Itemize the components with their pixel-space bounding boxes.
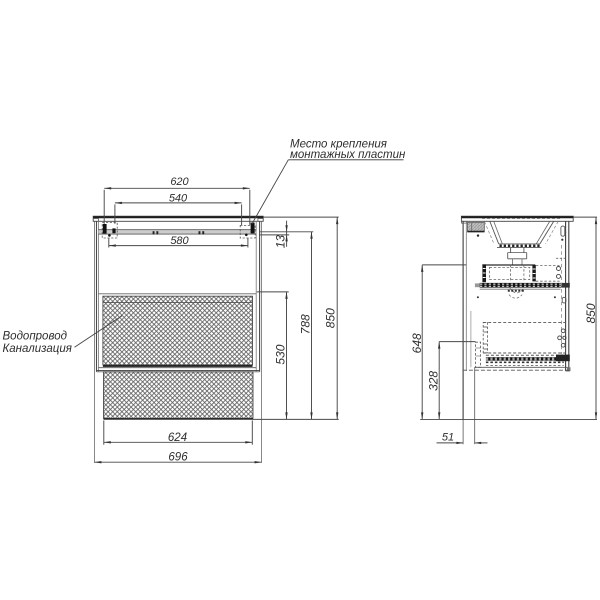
svg-text:850: 850: [324, 308, 338, 328]
svg-text:788: 788: [298, 314, 312, 334]
svg-text:Водопровод: Водопровод: [3, 331, 67, 343]
svg-text:696: 696: [168, 451, 188, 463]
svg-text:620: 620: [170, 176, 189, 188]
svg-text:328: 328: [427, 371, 441, 391]
svg-text:51: 51: [442, 432, 454, 444]
svg-text:580: 580: [170, 235, 189, 247]
svg-text:850: 850: [584, 303, 598, 323]
svg-text:624: 624: [168, 432, 187, 444]
svg-text:648: 648: [410, 333, 424, 353]
svg-text:530: 530: [273, 344, 287, 364]
svg-text:13: 13: [274, 235, 288, 249]
svg-text:Канализация: Канализация: [3, 343, 72, 355]
svg-text:монтажных пластин: монтажных пластин: [290, 149, 406, 161]
svg-text:540: 540: [169, 192, 188, 204]
